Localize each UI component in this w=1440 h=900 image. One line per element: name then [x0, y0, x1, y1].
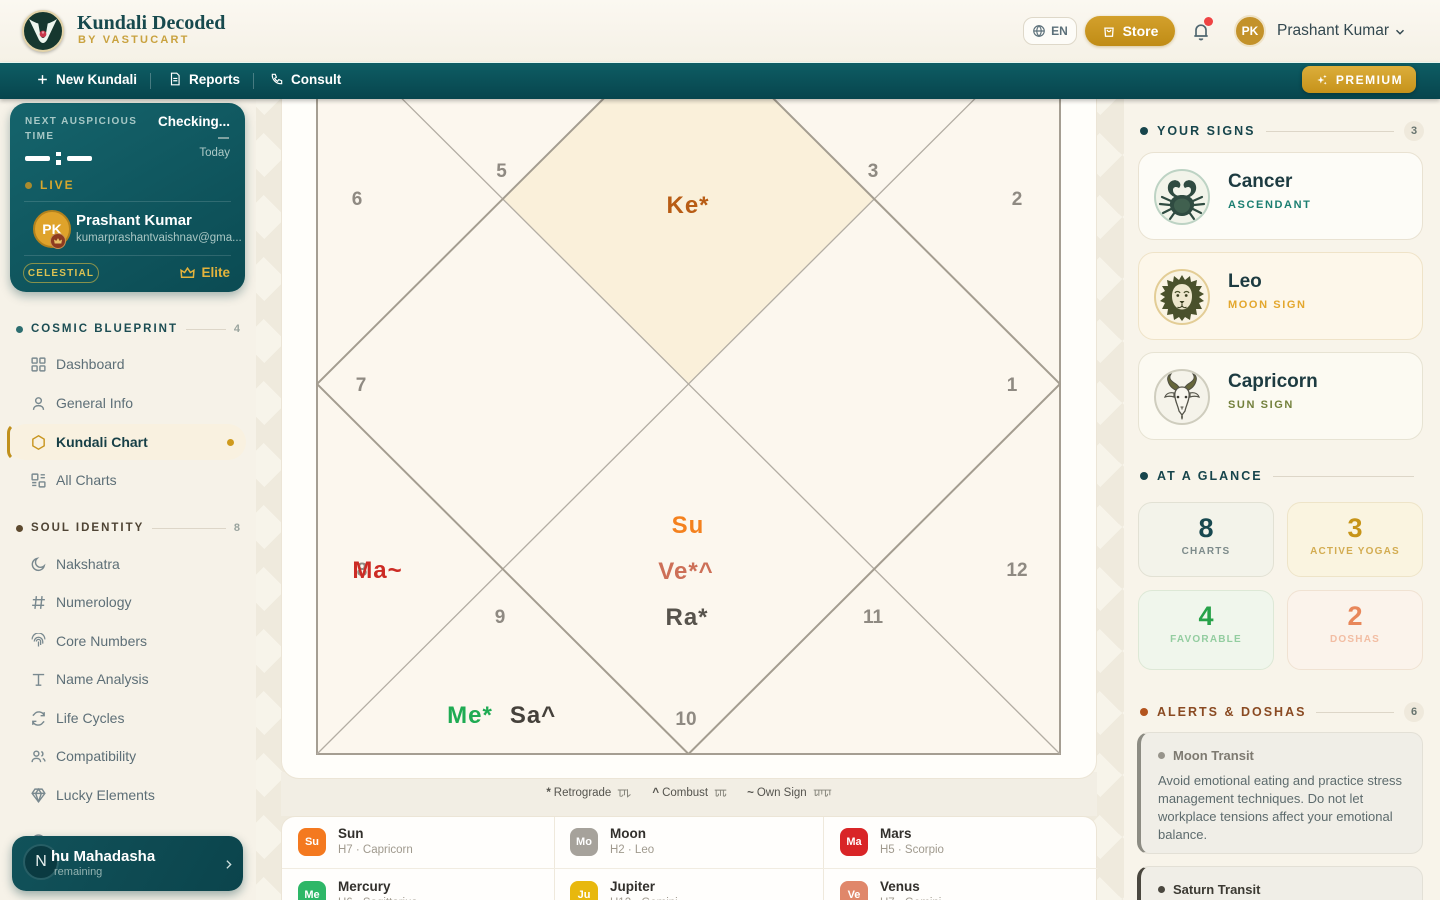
svg-text:11: 11: [863, 607, 884, 628]
svg-text:2: 2: [1012, 189, 1023, 210]
svg-text:Ra*: Ra*: [665, 604, 708, 631]
svg-text:9: 9: [495, 607, 506, 628]
svg-text:5: 5: [496, 161, 507, 182]
svg-text:Me*: Me*: [447, 702, 493, 729]
svg-text:Sa^: Sa^: [510, 702, 556, 729]
svg-text:Ve*^: Ve*^: [658, 558, 713, 585]
svg-text:7: 7: [356, 375, 367, 396]
svg-text:3: 3: [868, 161, 879, 182]
svg-text:Su: Su: [672, 512, 705, 539]
svg-text:12: 12: [1006, 560, 1027, 581]
svg-text:Ke*: Ke*: [666, 192, 709, 219]
svg-text:10: 10: [675, 709, 696, 730]
svg-text:1: 1: [1007, 375, 1018, 396]
svg-text:6: 6: [352, 189, 363, 210]
svg-text:Ma~: Ma~: [352, 557, 402, 584]
